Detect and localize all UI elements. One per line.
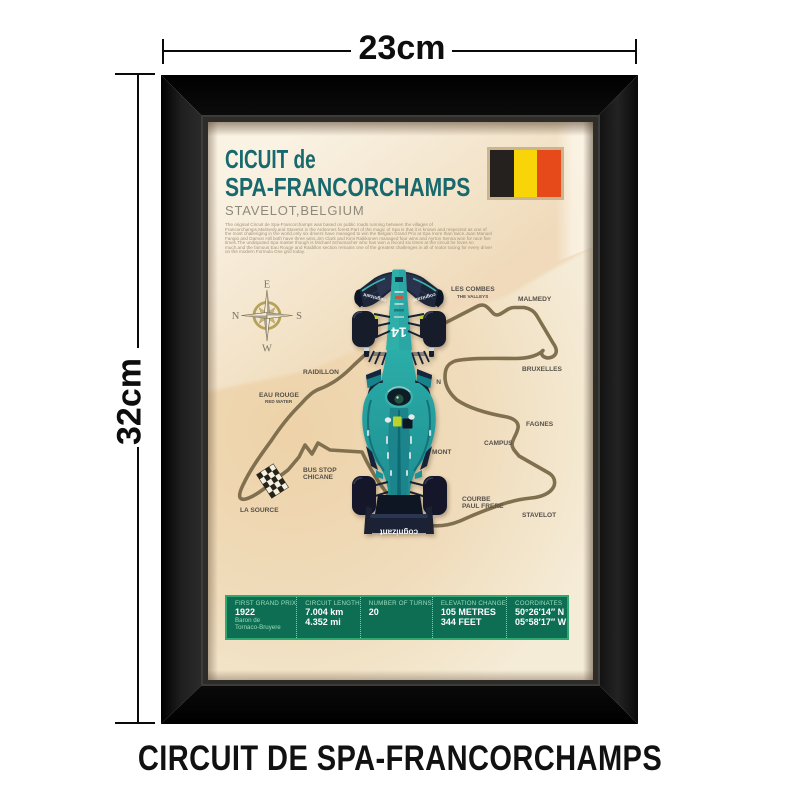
svg-text:MALMEDY: MALMEDY [518,296,552,303]
svg-text:EAU ROUGE: EAU ROUGE [259,392,300,399]
svg-text:MONT: MONT [432,449,451,456]
svg-text:STAVELOT: STAVELOT [522,512,556,519]
svg-text:S: S [296,311,302,322]
svg-text:cognizant: cognizant [380,528,418,537]
svg-text:CAMPUS: CAMPUS [484,440,513,447]
svg-text:CHICANE: CHICANE [303,474,334,481]
svg-text:LES COMBES: LES COMBES [451,286,495,293]
svg-text:W: W [262,344,272,355]
svg-text:BRUXELLES: BRUXELLES [522,366,563,373]
svg-text:N: N [232,311,240,322]
svg-text:RAIDILLON: RAIDILLON [303,369,339,376]
svg-text:THE VALLEYS: THE VALLEYS [457,294,488,299]
svg-text:BUS STOP: BUS STOP [303,467,337,474]
svg-text:LA SOURCE: LA SOURCE [240,507,279,514]
svg-text:14: 14 [391,325,407,341]
svg-text:N: N [436,379,441,386]
svg-text:FAGNES: FAGNES [526,421,554,428]
svg-text:COURBE: COURBE [462,496,491,503]
svg-text:RED WATER: RED WATER [265,399,293,404]
svg-text:E: E [264,280,270,291]
svg-text:PAUL FRERE: PAUL FRERE [462,503,504,510]
